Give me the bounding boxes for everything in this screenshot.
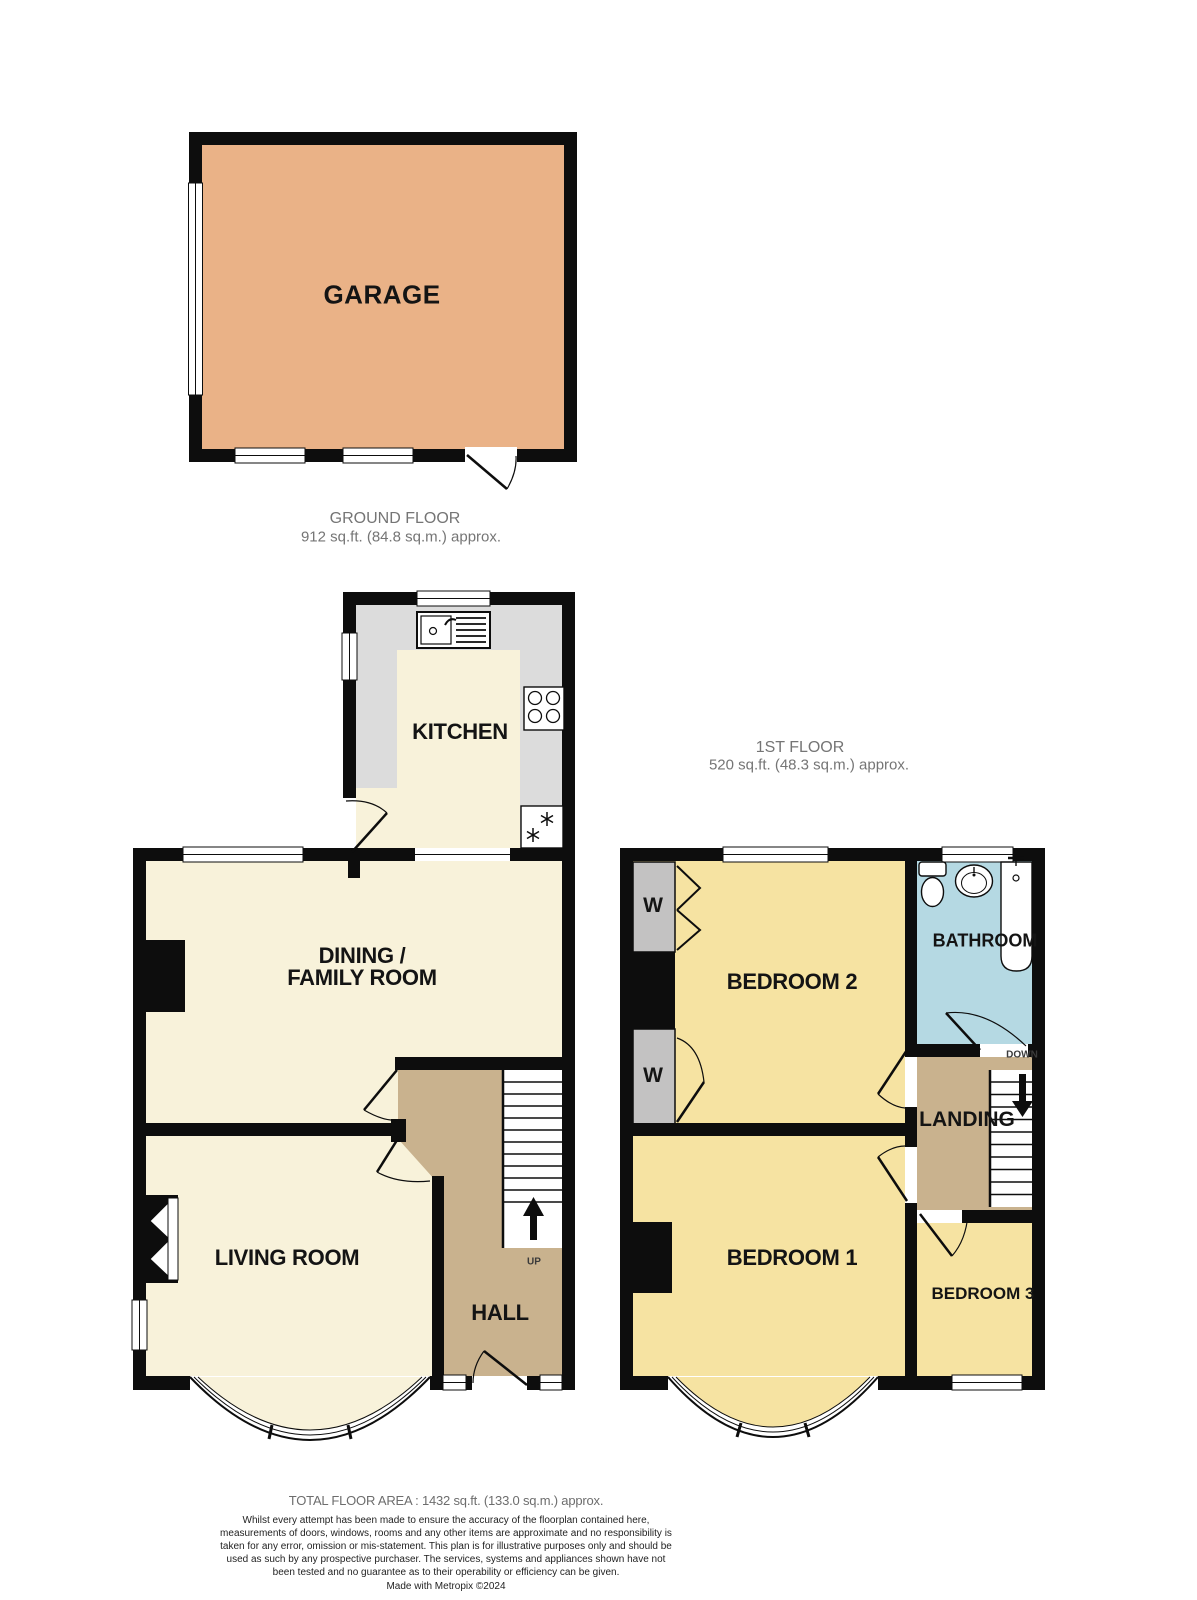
bedroom1-chimney-breast (620, 1222, 672, 1293)
ground-floor-area: 912 sq.ft. (84.8 sq.m.) approx. (301, 529, 501, 546)
first-floor-area: 520 sq.ft. (48.3 sq.m.) approx. (709, 757, 909, 774)
kitchen-window-left-icon (342, 633, 357, 680)
garage-window-left-icon (189, 183, 203, 395)
sink-icon (417, 612, 490, 648)
bath-icon (1001, 858, 1032, 971)
wardrobe2-label: W (643, 1064, 663, 1088)
total-floor-area: TOTAL FLOOR AREA : 1432 sq.ft. (133.0 sq… (289, 1493, 604, 1508)
landing-label: LANDING (919, 1108, 1015, 1132)
bedroom3-label: BEDROOM 3 (932, 1284, 1035, 1304)
bathroom-window-icon (942, 847, 1013, 862)
hob-icon (524, 687, 564, 730)
bedroom3-window-icon (952, 1375, 1022, 1390)
bedroom1-label: BEDROOM 1 (727, 1245, 858, 1271)
toilet-icon (919, 862, 946, 907)
freezer-icon (521, 806, 563, 848)
garage-label: GARAGE (323, 280, 440, 311)
disclaimer-text: Whilst every attempt has been made to en… (220, 1514, 672, 1579)
bedroom2-chimney-breast (620, 952, 675, 1029)
living-window-left-icon (132, 1300, 147, 1350)
first-floor-title: 1ST FLOOR (756, 739, 845, 757)
basin-icon (956, 865, 993, 897)
bathroom-label: BATHROOM (933, 931, 1038, 952)
bedroom2-window-icon (723, 847, 828, 862)
bay-window-living-icon (190, 1377, 430, 1440)
garage-room (189, 132, 578, 489)
dining-room-label: DINING /FAMILY ROOM (287, 945, 437, 989)
stairs-up-label: UP (527, 1257, 541, 1268)
floorplan-canvas: GARAGE GROUND FLOOR 912 sq.ft. (84.8 sq.… (0, 0, 1197, 1600)
stairs-up (503, 1070, 562, 1248)
dining-chimney-breast (133, 940, 185, 1012)
hall-label: HALL (471, 1300, 528, 1326)
wardrobe1-label: W (643, 894, 663, 918)
dining-window-icon (183, 847, 303, 862)
kitchen-window-top-icon (417, 591, 490, 606)
stairs-down-label: DOWN (1006, 1050, 1038, 1061)
made-with-credit: Made with Metropix ©2024 (386, 1581, 505, 1592)
bedroom2-label: BEDROOM 2 (727, 969, 858, 995)
fireplace-icon (133, 1195, 178, 1283)
kitchen-label: KITCHEN (412, 719, 508, 745)
floorplan-drawing (0, 0, 1197, 1600)
bay-window-bedroom1-icon (668, 1377, 878, 1437)
garage-door-icon (465, 447, 517, 489)
living-room-label: LIVING ROOM (215, 1245, 360, 1271)
stairs-down (990, 1070, 1033, 1207)
ground-floor-title: GROUND FLOOR (330, 510, 461, 528)
